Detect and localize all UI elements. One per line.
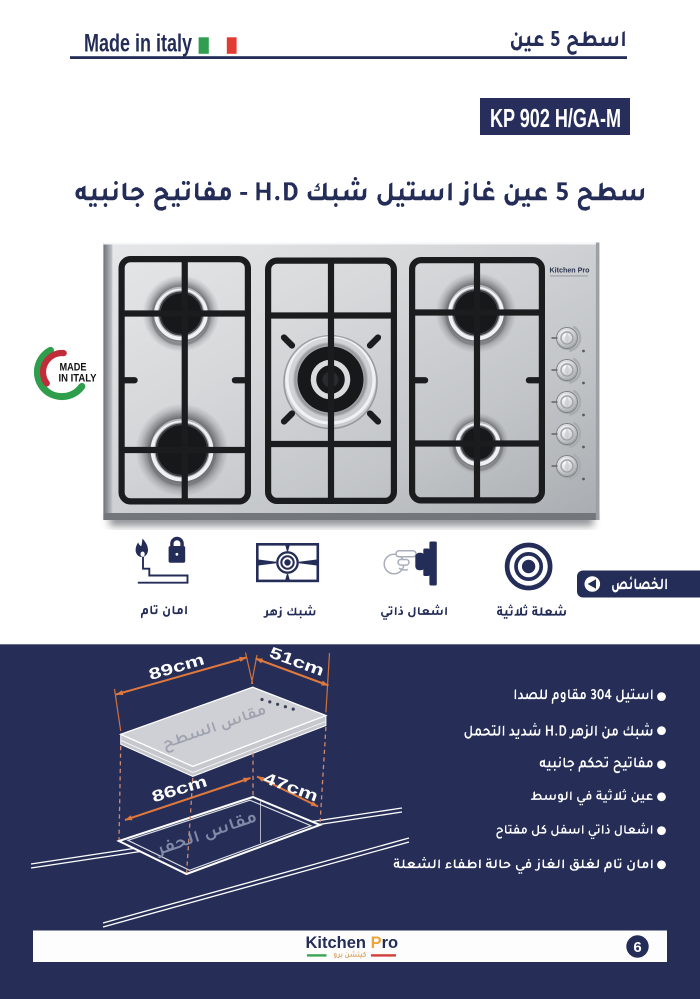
svg-text:Kitchen Pro: Kitchen Pro <box>306 934 399 952</box>
svg-text:Made in italy: Made in italy <box>84 30 192 58</box>
svg-text:KP 902 H/GA-M: KP 902 H/GA-M <box>490 103 621 133</box>
svg-text:Kitchen Pro: Kitchen Pro <box>550 266 590 275</box>
svg-text:IN ITALY: IN ITALY <box>59 373 98 385</box>
svg-text:6: 6 <box>633 939 641 956</box>
